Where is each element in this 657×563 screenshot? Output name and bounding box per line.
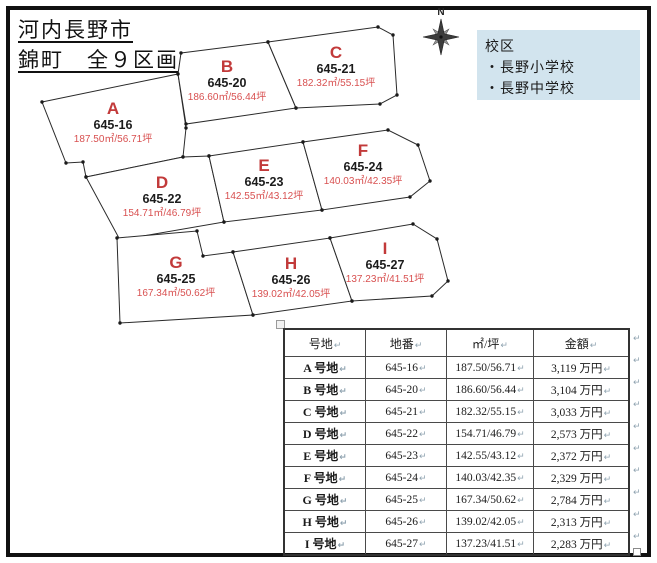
plot-vertex-dot	[195, 229, 198, 232]
plot-vertex-dot	[115, 236, 118, 239]
plot-polygons	[40, 25, 449, 324]
plot-vertex-dot	[176, 72, 179, 75]
table-row: B 号地↵645-20↵186.60/56.44↵3,104 万円↵	[284, 379, 629, 401]
paragraph-mark-icon: ↵	[339, 453, 347, 463]
paragraph-mark-icon: ↵	[419, 540, 427, 550]
plot-vertex-dot	[395, 93, 398, 96]
paragraph-mark-icon: ↵	[419, 518, 427, 528]
paragraph-mark-icon: ↵	[604, 431, 612, 441]
cell-price: 2,283 万円↵	[534, 533, 630, 556]
cell-lot-number: 645-20↵	[366, 379, 447, 401]
cell-plot-name: H 号地↵	[284, 511, 366, 533]
table-row: C 号地↵645-21↵182.32/55.15↵3,033 万円↵	[284, 401, 629, 423]
paragraph-mark-icon: ↵	[604, 497, 612, 507]
paragraph-mark-icon: ↵	[339, 475, 347, 485]
cell-lot-number: 645-16↵	[366, 357, 447, 379]
plot-vertex-dot	[435, 237, 438, 240]
cell-price: 2,329 万円↵	[534, 467, 630, 489]
paragraph-mark-icon: ↵	[419, 474, 427, 484]
paragraph-mark-icon: ↵	[419, 452, 427, 462]
cell-plot-name: I 号地↵	[284, 533, 366, 556]
paragraph-mark-icon: ↵	[340, 409, 348, 419]
cell-size: 167.34/50.62↵	[447, 489, 534, 511]
plot-vertex-dot	[430, 294, 433, 297]
plot-vertex-dot	[301, 140, 304, 143]
cell-lot-number: 645-23↵	[366, 445, 447, 467]
plot-vertex-dot	[40, 100, 43, 103]
plot-vertex-dot	[411, 222, 414, 225]
column-header: 地番↵	[366, 329, 447, 357]
column-header: 号地↵	[284, 329, 366, 357]
paragraph-mark-icon: ↵	[517, 496, 525, 506]
cell-plot-name: A 号地↵	[284, 357, 366, 379]
paragraph-mark-icon: ↵	[517, 474, 525, 484]
paragraph-mark-icon: ↵	[517, 386, 525, 396]
paragraph-mark-icon: ↵	[633, 357, 641, 366]
paragraph-mark-icon: ↵	[633, 511, 641, 520]
paragraph-mark-icon: ↵	[517, 518, 525, 528]
plot-vertex-dot	[81, 160, 84, 163]
school-item-juniorhigh: ・長野中学校	[485, 78, 640, 99]
cell-plot-name: B 号地↵	[284, 379, 366, 401]
plot-vertex-dot	[408, 195, 411, 198]
compass-rose-icon: N	[423, 7, 459, 55]
row-end-marks: ↵↵↵↵↵↵↵↵↵↵	[632, 328, 646, 548]
paragraph-mark-icon: ↵	[633, 379, 641, 388]
plot-vertex-dot	[416, 143, 419, 146]
paragraph-mark-icon: ↵	[419, 386, 427, 396]
paragraph-mark-icon: ↵	[339, 387, 347, 397]
cell-size: 140.03/42.35↵	[447, 467, 534, 489]
paragraph-mark-icon: ↵	[633, 401, 641, 410]
cell-price: 3,119 万円↵	[534, 357, 630, 379]
paragraph-mark-icon: ↵	[604, 541, 612, 551]
plot-vertex-dot	[84, 175, 87, 178]
school-item-elementary: ・長野小学校	[485, 57, 640, 78]
table-row: A 号地↵645-16↵187.50/56.71↵3,119 万円↵	[284, 357, 629, 379]
plot-polygon-I	[330, 224, 448, 301]
table-row: H 号地↵645-26↵139.02/42.05↵2,313 万円↵	[284, 511, 629, 533]
plot-vertex-dot	[350, 299, 353, 302]
plot-vertex-dot	[184, 126, 187, 129]
paragraph-mark-icon: ↵	[340, 431, 348, 441]
price-table-header: 号地↵地番↵㎡/坪↵金額↵	[284, 329, 629, 357]
compass-north-label: N	[437, 7, 444, 18]
table-row: D 号地↵645-22↵154.71/46.79↵2,573 万円↵	[284, 423, 629, 445]
plot-vertex-dot	[391, 33, 394, 36]
paragraph-mark-icon: ↵	[340, 497, 348, 507]
table-row: F 号地↵645-24↵140.03/42.35↵2,329 万円↵	[284, 467, 629, 489]
plot-vertex-dot	[446, 279, 449, 282]
cell-lot-number: 645-22↵	[366, 423, 447, 445]
paragraph-mark-icon: ↵	[339, 365, 347, 375]
paragraph-mark-icon: ↵	[633, 533, 641, 542]
paragraph-mark-icon: ↵	[419, 496, 427, 506]
paragraph-mark-icon: ↵	[517, 364, 525, 374]
plot-vertex-dot	[294, 106, 297, 109]
paragraph-mark-icon: ↵	[517, 540, 525, 550]
cell-plot-name: C 号地↵	[284, 401, 366, 423]
cell-price: 2,372 万円↵	[534, 445, 630, 467]
table-resize-handle-icon	[633, 548, 641, 556]
table-row: G 号地↵645-25↵167.34/50.62↵2,784 万円↵	[284, 489, 629, 511]
paragraph-mark-icon: ↵	[604, 409, 612, 419]
paragraph-mark-icon: ↵	[633, 423, 641, 432]
plot-vertex-dot	[428, 179, 431, 182]
price-table: 号地↵地番↵㎡/坪↵金額↵ A 号地↵645-16↵187.50/56.71↵3…	[283, 328, 630, 556]
paragraph-mark-icon: ↵	[604, 475, 612, 485]
cell-size: 182.32/55.15↵	[447, 401, 534, 423]
plot-vertex-dot	[328, 236, 331, 239]
plot-vertex-dot	[231, 250, 234, 253]
paragraph-mark-icon: ↵	[415, 341, 423, 351]
paragraph-mark-icon: ↵	[419, 408, 427, 418]
cell-plot-name: G 号地↵	[284, 489, 366, 511]
cell-plot-name: F 号地↵	[284, 467, 366, 489]
plot-vertex-dot	[386, 128, 389, 131]
paragraph-mark-icon: ↵	[604, 519, 612, 529]
plot-vertex-dot	[376, 25, 379, 28]
cell-price: 2,573 万円↵	[534, 423, 630, 445]
cell-plot-name: E 号地↵	[284, 445, 366, 467]
paragraph-mark-icon: ↵	[603, 365, 611, 375]
paragraph-mark-icon: ↵	[338, 541, 346, 551]
paragraph-mark-icon: ↵	[419, 430, 427, 440]
table-row: I 号地↵645-27↵137.23/41.51↵2,283 万円↵	[284, 533, 629, 556]
paragraph-mark-icon: ↵	[517, 430, 525, 440]
table-row: E 号地↵645-23↵142.55/43.12↵2,372 万円↵	[284, 445, 629, 467]
paragraph-mark-icon: ↵	[604, 453, 612, 463]
flyer-page: 河内長野市 錦町 全９区画 N A645-16187.50㎡/56.71坪B64…	[0, 0, 657, 563]
cell-lot-number: 645-25↵	[366, 489, 447, 511]
paragraph-mark-icon: ↵	[334, 341, 342, 351]
plot-vertex-dot	[179, 51, 182, 54]
paragraph-mark-icon: ↵	[633, 445, 641, 454]
plot-polygon-E	[209, 142, 322, 222]
cell-lot-number: 645-26↵	[366, 511, 447, 533]
cell-size: 142.55/43.12↵	[447, 445, 534, 467]
plot-vertex-dot	[266, 40, 269, 43]
cell-size: 186.60/56.44↵	[447, 379, 534, 401]
column-header: 金額↵	[534, 329, 630, 357]
cell-lot-number: 645-24↵	[366, 467, 447, 489]
school-box-title: 校区	[485, 36, 640, 57]
cell-size: 137.23/41.51↵	[447, 533, 534, 556]
plot-polygon-G	[117, 231, 253, 323]
paragraph-mark-icon: ↵	[517, 408, 525, 418]
plot-vertex-dot	[184, 122, 187, 125]
plot-vertex-dot	[320, 208, 323, 211]
cell-size: 187.50/56.71↵	[447, 357, 534, 379]
cell-plot-name: D 号地↵	[284, 423, 366, 445]
paragraph-mark-icon: ↵	[517, 452, 525, 462]
cell-price: 3,104 万円↵	[534, 379, 630, 401]
cell-size: 139.02/42.05↵	[447, 511, 534, 533]
cell-lot-number: 645-21↵	[366, 401, 447, 423]
cell-price: 2,313 万円↵	[534, 511, 630, 533]
cell-lot-number: 645-27↵	[366, 533, 447, 556]
paragraph-mark-icon: ↵	[633, 489, 641, 498]
paragraph-mark-icon: ↵	[633, 335, 641, 344]
paragraph-mark-icon: ↵	[590, 341, 598, 351]
plot-vertex-dot	[251, 313, 254, 316]
plot-vertex-dot	[118, 321, 121, 324]
plot-vertex-dot	[207, 154, 210, 157]
cell-price: 2,784 万円↵	[534, 489, 630, 511]
paragraph-mark-icon: ↵	[500, 341, 508, 351]
paragraph-mark-icon: ↵	[604, 387, 612, 397]
cell-size: 154.71/46.79↵	[447, 423, 534, 445]
plot-vertex-dot	[64, 161, 67, 164]
plot-vertex-dot	[378, 102, 381, 105]
paragraph-mark-icon: ↵	[419, 364, 427, 374]
column-header: ㎡/坪↵	[447, 329, 534, 357]
plot-vertex-dot	[181, 155, 184, 158]
cell-price: 3,033 万円↵	[534, 401, 630, 423]
plot-vertex-dot	[222, 220, 225, 223]
paragraph-mark-icon: ↵	[340, 519, 348, 529]
paragraph-mark-icon: ↵	[633, 467, 641, 476]
plot-vertex-dot	[201, 254, 204, 257]
school-district-box: 校区 ・長野小学校 ・長野中学校	[477, 30, 640, 100]
